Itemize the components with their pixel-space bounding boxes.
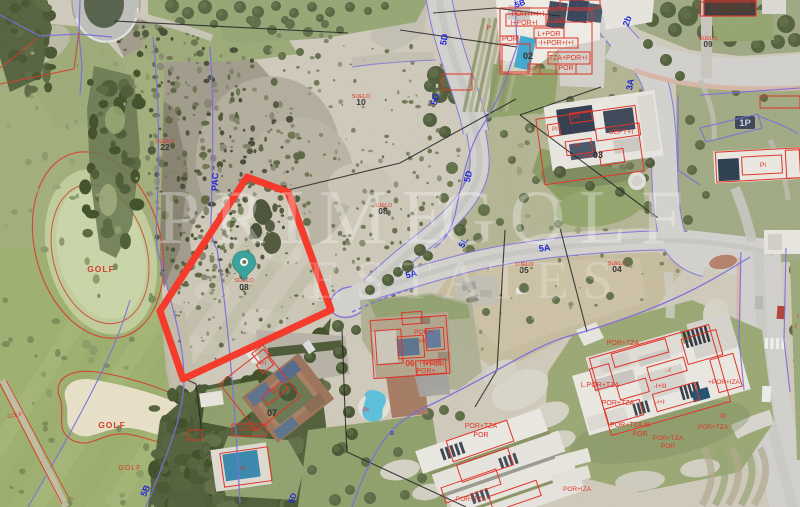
svg-text:I+III: I+III bbox=[554, 17, 566, 24]
svg-text:03: 03 bbox=[593, 150, 603, 160]
svg-text:-I: -I bbox=[793, 324, 797, 330]
svg-text:5D: 5D bbox=[438, 32, 450, 46]
svg-text:I+POR: I+POR bbox=[239, 426, 259, 433]
svg-text:09: 09 bbox=[704, 40, 713, 49]
svg-text:GOLF: GOLF bbox=[87, 264, 115, 274]
svg-text:POR+TZA: POR+TZA bbox=[465, 423, 498, 430]
svg-text:I+I: I+I bbox=[573, 142, 581, 149]
svg-text:POR+TZA: POR+TZA bbox=[698, 424, 729, 431]
svg-text:I+I: I+I bbox=[419, 339, 426, 345]
svg-text:POR+TZA III: POR+TZA III bbox=[610, 422, 650, 429]
svg-text:I+I: I+I bbox=[260, 361, 267, 367]
svg-text:SEPT+I: SEPT+I bbox=[609, 129, 633, 136]
svg-text:-I+POR+I+I: -I+POR+I+I bbox=[538, 40, 574, 47]
svg-text:.-I: .-I bbox=[665, 367, 671, 374]
svg-text:PI: PI bbox=[552, 127, 558, 133]
svg-text:+POR+IZA: +POR+IZA bbox=[708, 379, 740, 386]
svg-text:PI: PI bbox=[760, 162, 766, 169]
svg-text:,-I+I: ,-I+I bbox=[653, 399, 665, 406]
svg-text:3A: 3A bbox=[624, 77, 636, 91]
svg-text:POR+I+I+I: POR+I+I+I bbox=[511, 11, 544, 18]
svg-text:10: 10 bbox=[356, 97, 366, 107]
svg-text:PI: PI bbox=[363, 408, 369, 414]
svg-text:GOLF: GOLF bbox=[440, 174, 697, 260]
svg-text:-I+III: -I+III bbox=[653, 383, 666, 390]
svg-text:POR: POR bbox=[473, 432, 488, 439]
svg-text:POR+IZA: POR+IZA bbox=[563, 486, 592, 493]
svg-text:POR+TZA: POR+TZA bbox=[456, 496, 487, 503]
svg-text:POR: POR bbox=[558, 65, 573, 72]
svg-text:POR: POR bbox=[661, 443, 675, 450]
svg-text:POR+TZA: POR+TZA bbox=[602, 400, 635, 407]
svg-text:I+POR+I: I+POR+I bbox=[510, 20, 537, 27]
svg-text:06: 06 bbox=[406, 359, 415, 368]
svg-text:I+POR: I+POR bbox=[423, 361, 444, 368]
svg-text:POR+TZA: POR+TZA bbox=[653, 435, 684, 442]
svg-text:=: = bbox=[390, 429, 395, 438]
svg-text:POR: POR bbox=[502, 34, 519, 43]
svg-text:ESTATES: ESTATES bbox=[308, 250, 627, 310]
svg-text:TZA+POR+I: TZA+POR+I bbox=[549, 55, 588, 62]
svg-text:07: 07 bbox=[267, 408, 277, 418]
svg-text:02: 02 bbox=[523, 51, 533, 61]
svg-text:08: 08 bbox=[239, 282, 249, 292]
svg-text:POR+TZA: POR+TZA bbox=[607, 340, 640, 347]
svg-text:L+POR: L+POR bbox=[537, 31, 560, 38]
svg-text:III: III bbox=[720, 413, 726, 420]
svg-text:L.POR+TZA: L.POR+TZA bbox=[581, 382, 620, 389]
svg-text:POR: POR bbox=[632, 431, 647, 438]
svg-text:PI: PI bbox=[531, 67, 537, 73]
svg-text:POR: POR bbox=[267, 388, 281, 395]
svg-text:P: P bbox=[487, 25, 492, 32]
svg-text:22: 22 bbox=[160, 142, 170, 152]
svg-text:POR+: POR+ bbox=[416, 368, 435, 375]
svg-text:GOLF: GOLF bbox=[98, 420, 126, 430]
svg-text:I+I: I+I bbox=[572, 114, 580, 121]
svg-text:el: el bbox=[241, 466, 246, 472]
svg-text:POR+I: POR+I bbox=[414, 329, 434, 336]
svg-text:GOLF: GOLF bbox=[118, 465, 141, 472]
svg-text:PRIME: PRIME bbox=[157, 174, 462, 260]
